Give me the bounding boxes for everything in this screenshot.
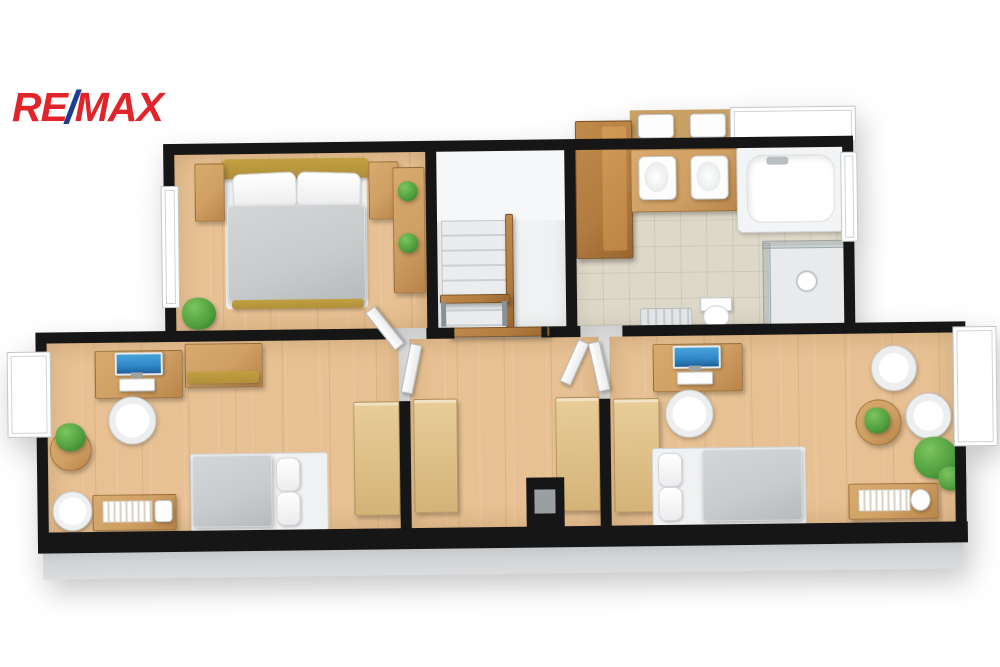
sink-basin — [644, 162, 668, 192]
wall-cabinet-front — [187, 371, 259, 384]
shower-glass-wall — [762, 240, 845, 249]
bedroom-window — [161, 186, 180, 308]
wall — [599, 399, 612, 526]
duvet — [227, 204, 366, 304]
floor-plan — [0, 0, 1000, 667]
wall — [399, 401, 412, 528]
plant-pot — [398, 181, 418, 201]
pillow — [276, 491, 300, 525]
railing-post — [541, 326, 547, 337]
stair-bench-leg — [441, 302, 446, 327]
stair-bench-leg — [502, 301, 507, 326]
bathroom-window — [840, 152, 858, 242]
dormer-window-left — [7, 351, 52, 438]
mirror-sink-reflection — [690, 113, 726, 137]
keyboard — [677, 371, 713, 384]
plant-pot — [398, 233, 418, 253]
stairs — [441, 220, 508, 329]
stair-landing — [436, 150, 565, 222]
sink-basin — [696, 161, 720, 191]
mirror-sink-reflection — [638, 114, 674, 138]
dormer-window-right — [952, 326, 997, 447]
bed-foot-rail — [232, 299, 364, 310]
plant — [864, 407, 890, 433]
pillow — [276, 457, 300, 491]
shower-head — [796, 270, 818, 292]
single-bed-duvet — [702, 448, 803, 521]
pillow — [658, 453, 682, 487]
wardrobe — [413, 399, 458, 514]
bathtub-inner — [746, 154, 835, 223]
books — [102, 500, 152, 523]
wall — [545, 326, 580, 337]
stair-bench — [440, 294, 510, 304]
stair-railing — [448, 326, 549, 337]
keyboard — [119, 378, 155, 391]
nightstand-left — [194, 163, 225, 221]
single-bed-duvet — [192, 455, 273, 528]
chimney-cap — [534, 489, 555, 513]
decor-pot — [910, 489, 930, 511]
shower-glass-wall — [762, 243, 771, 325]
floor-plant — [182, 297, 216, 329]
decor-pot — [154, 500, 172, 522]
bathtub-faucet — [766, 156, 788, 164]
books — [858, 489, 910, 512]
wall — [426, 328, 450, 339]
railing-post — [448, 328, 454, 339]
pillow — [658, 487, 682, 521]
monitor-stand — [131, 372, 143, 377]
wall — [163, 144, 175, 186]
monitor-stand — [689, 366, 701, 371]
wardrobe — [353, 401, 400, 516]
plant — [55, 423, 85, 451]
floorplan-image: RE/MAX — [0, 0, 1000, 667]
